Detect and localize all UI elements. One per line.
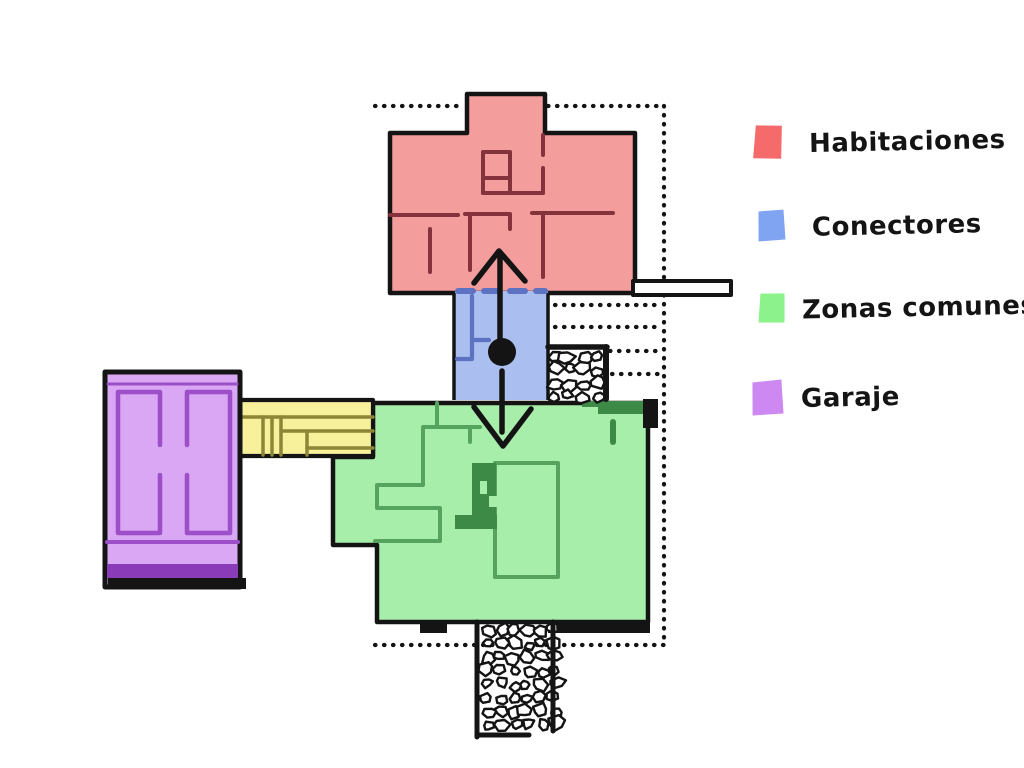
stone-path-upper [547, 347, 607, 403]
floor-plan-canvas: Habitaciones Conectores Zonas comunes Ga… [0, 0, 1024, 768]
garaje-outline [105, 372, 240, 587]
garaje-dark-band [107, 564, 238, 578]
route-dot [488, 338, 516, 366]
green-black-sill-right [548, 620, 650, 633]
stone-pebbles-upper [547, 351, 605, 403]
garaje-zone [105, 372, 246, 589]
floor-plan-drawing [0, 0, 1024, 768]
garaje-black-band [108, 578, 246, 589]
green-black-corner [643, 399, 658, 428]
stone-path-lower [477, 622, 566, 737]
green-black-sill-left [420, 622, 447, 633]
pasillo-corridor [237, 400, 373, 456]
porch-bar [633, 281, 731, 295]
